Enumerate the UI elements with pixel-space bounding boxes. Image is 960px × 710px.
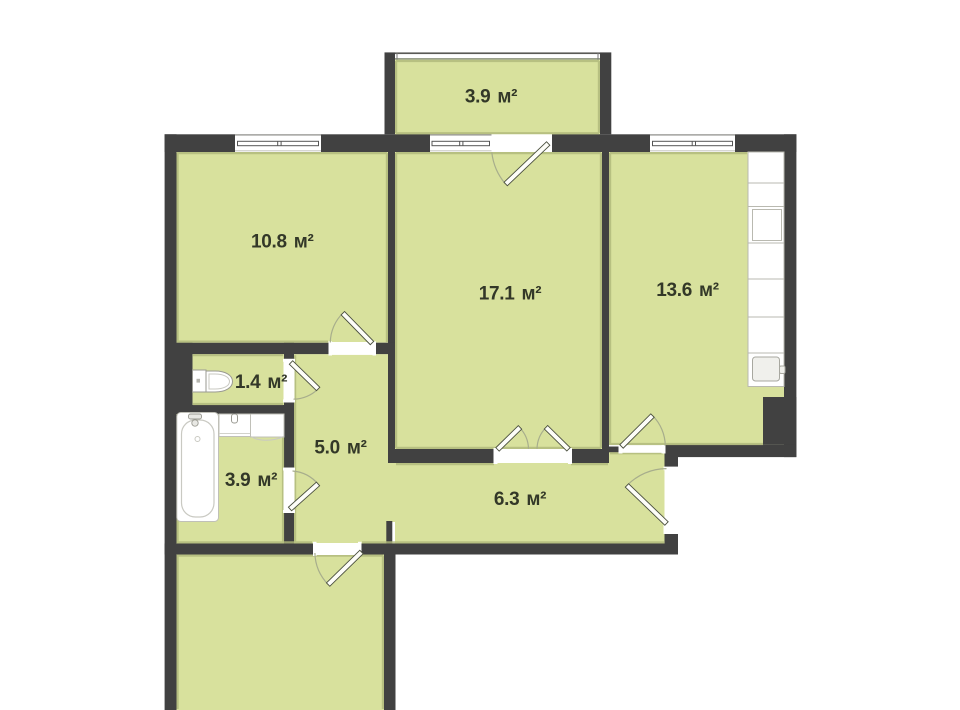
svg-text:6.3 м²: 6.3 м² bbox=[494, 489, 546, 510]
svg-text:13.6 м²: 13.6 м² bbox=[656, 280, 719, 301]
svg-text:1.4 м²: 1.4 м² bbox=[235, 372, 287, 393]
svg-text:17.1 м²: 17.1 м² bbox=[479, 283, 542, 304]
svg-text:3.9 м²: 3.9 м² bbox=[225, 470, 277, 491]
svg-text:10.8 м²: 10.8 м² bbox=[251, 231, 314, 252]
svg-text:5.0 м²: 5.0 м² bbox=[314, 438, 366, 459]
svg-text:3.9 м²: 3.9 м² bbox=[465, 87, 517, 108]
